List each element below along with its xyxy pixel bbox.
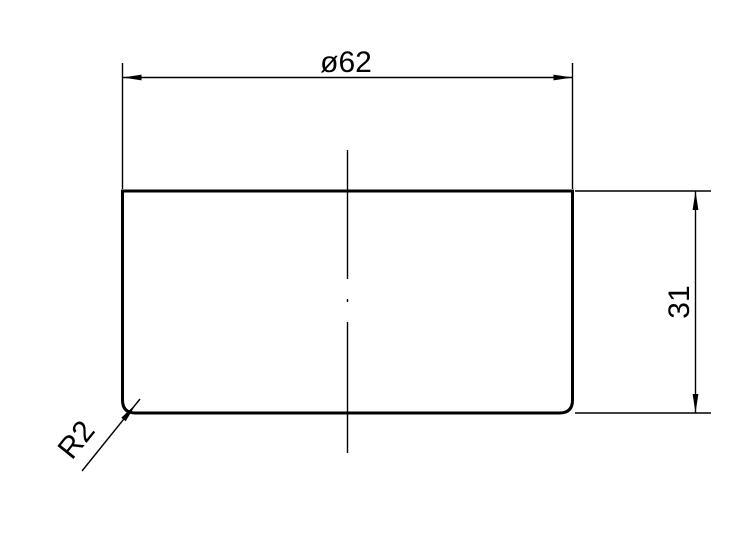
arrowhead-up-icon (693, 191, 699, 210)
height-dimension-label: 31 (663, 285, 696, 318)
height-dimension: 31 (575, 191, 711, 413)
technical-drawing: ø62 31 R2 (0, 0, 741, 538)
arrowhead-down-icon (693, 394, 699, 413)
radius-dimension-label: R2 (52, 415, 102, 466)
cad-drawing-canvas: ø62 31 R2 (0, 0, 741, 538)
diameter-dimension-label: ø62 (320, 46, 372, 79)
arrowhead-left-icon (123, 75, 142, 81)
arrowhead-right-icon (554, 75, 573, 81)
